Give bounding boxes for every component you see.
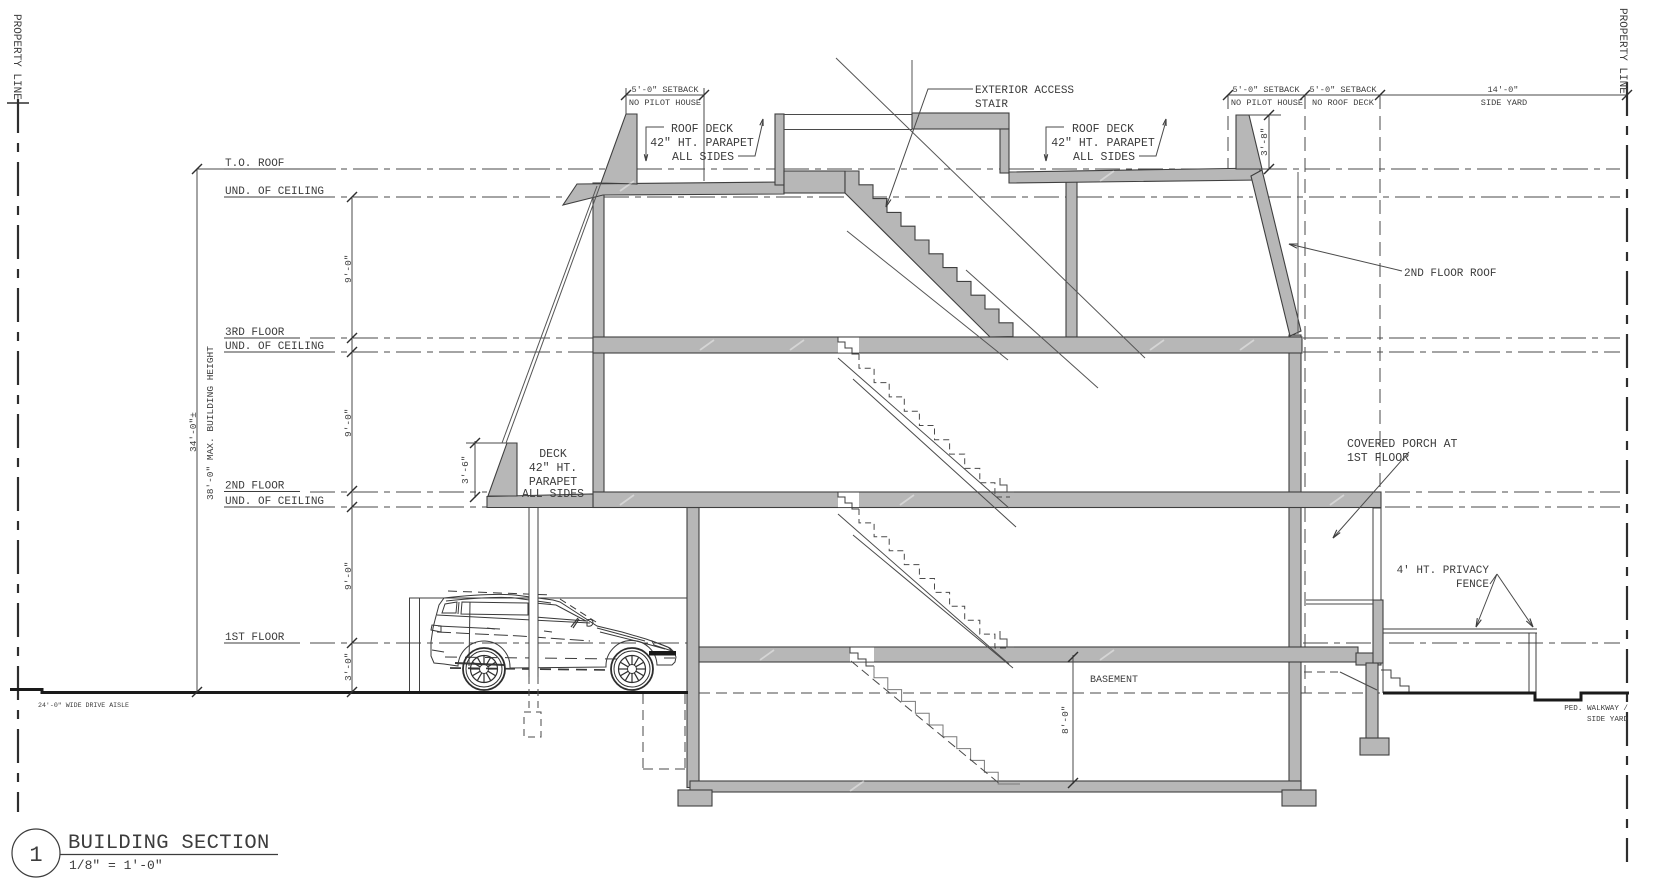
svg-text:9'-0": 9'-0" [343,408,354,437]
svg-text:34'-0"±: 34'-0"± [188,412,199,452]
svg-text:PROPERTY LINE: PROPERTY LINE [1616,8,1628,94]
svg-text:9'-0": 9'-0" [343,254,354,283]
svg-text:3'-8": 3'-8" [1259,127,1270,156]
svg-text:ROOF DECK: ROOF DECK [1072,123,1134,136]
svg-text:42" HT.: 42" HT. [529,462,577,475]
svg-text:UND. OF CEILING: UND. OF CEILING [225,341,324,353]
svg-text:4' HT. PRIVACY: 4' HT. PRIVACY [1397,565,1490,577]
svg-text:5'-0" SETBACK: 5'-0" SETBACK [1232,85,1300,95]
svg-text:COVERED PORCH AT: COVERED PORCH AT [1347,438,1458,451]
svg-text:PED. WALKWAY /: PED. WALKWAY / [1564,705,1628,713]
svg-text:ALL SIDES: ALL SIDES [672,151,734,164]
svg-text:5'-0" SETBACK: 5'-0" SETBACK [631,85,699,95]
svg-text:38'-0" MAX. BUILDING HEIGHT: 38'-0" MAX. BUILDING HEIGHT [205,346,216,500]
svg-text:STAIR: STAIR [975,99,1008,111]
svg-text:FENCE: FENCE [1456,579,1489,591]
svg-text:2ND FLOOR ROOF: 2ND FLOOR ROOF [1404,268,1496,280]
svg-text:EXTERIOR ACCESS: EXTERIOR ACCESS [975,85,1074,97]
svg-text:BUILDING SECTION: BUILDING SECTION [68,832,270,855]
svg-text:ALL SIDES: ALL SIDES [522,488,584,501]
svg-text:ROOF DECK: ROOF DECK [671,123,733,136]
svg-text:DECK: DECK [539,448,567,461]
svg-text:3'-0": 3'-0" [343,652,354,681]
svg-text:42" HT. PARAPET: 42" HT. PARAPET [650,137,754,150]
svg-text:24'-0" WIDE DRIVE AISLE: 24'-0" WIDE DRIVE AISLE [38,702,129,709]
svg-text:PROPERTY LINE: PROPERTY LINE [10,14,22,100]
svg-text:1/8" = 1'-0": 1/8" = 1'-0" [69,858,163,873]
svg-text:1ST FLOOR: 1ST FLOOR [225,632,285,644]
svg-text:BASEMENT: BASEMENT [1090,675,1138,686]
svg-text:1: 1 [29,843,42,868]
svg-text:3'-6": 3'-6" [460,455,471,484]
svg-text:8'-0": 8'-0" [1060,705,1071,734]
svg-text:2ND FLOOR: 2ND FLOOR [225,481,285,493]
svg-text:T.O. ROOF: T.O. ROOF [225,158,284,170]
svg-text:NO PILOT HOUSE: NO PILOT HOUSE [629,98,701,108]
svg-text:42" HT. PARAPET: 42" HT. PARAPET [1051,137,1155,150]
svg-text:14'-0": 14'-0" [1488,85,1519,95]
svg-text:SIDE YARD: SIDE YARD [1481,98,1527,108]
svg-text:3RD FLOOR: 3RD FLOOR [225,327,285,339]
svg-text:5'-0" SETBACK: 5'-0" SETBACK [1309,85,1377,95]
svg-text:9'-0": 9'-0" [343,561,354,590]
svg-text:SIDE YARD: SIDE YARD [1587,716,1628,724]
svg-text:ALL SIDES: ALL SIDES [1073,151,1135,164]
svg-text:NO ROOF DECK: NO ROOF DECK [1312,98,1375,108]
svg-text:UND. OF CEILING: UND. OF CEILING [225,186,324,198]
svg-text:UND. OF CEILING: UND. OF CEILING [225,496,324,508]
svg-text:NO PILOT HOUSE: NO PILOT HOUSE [1231,98,1303,108]
